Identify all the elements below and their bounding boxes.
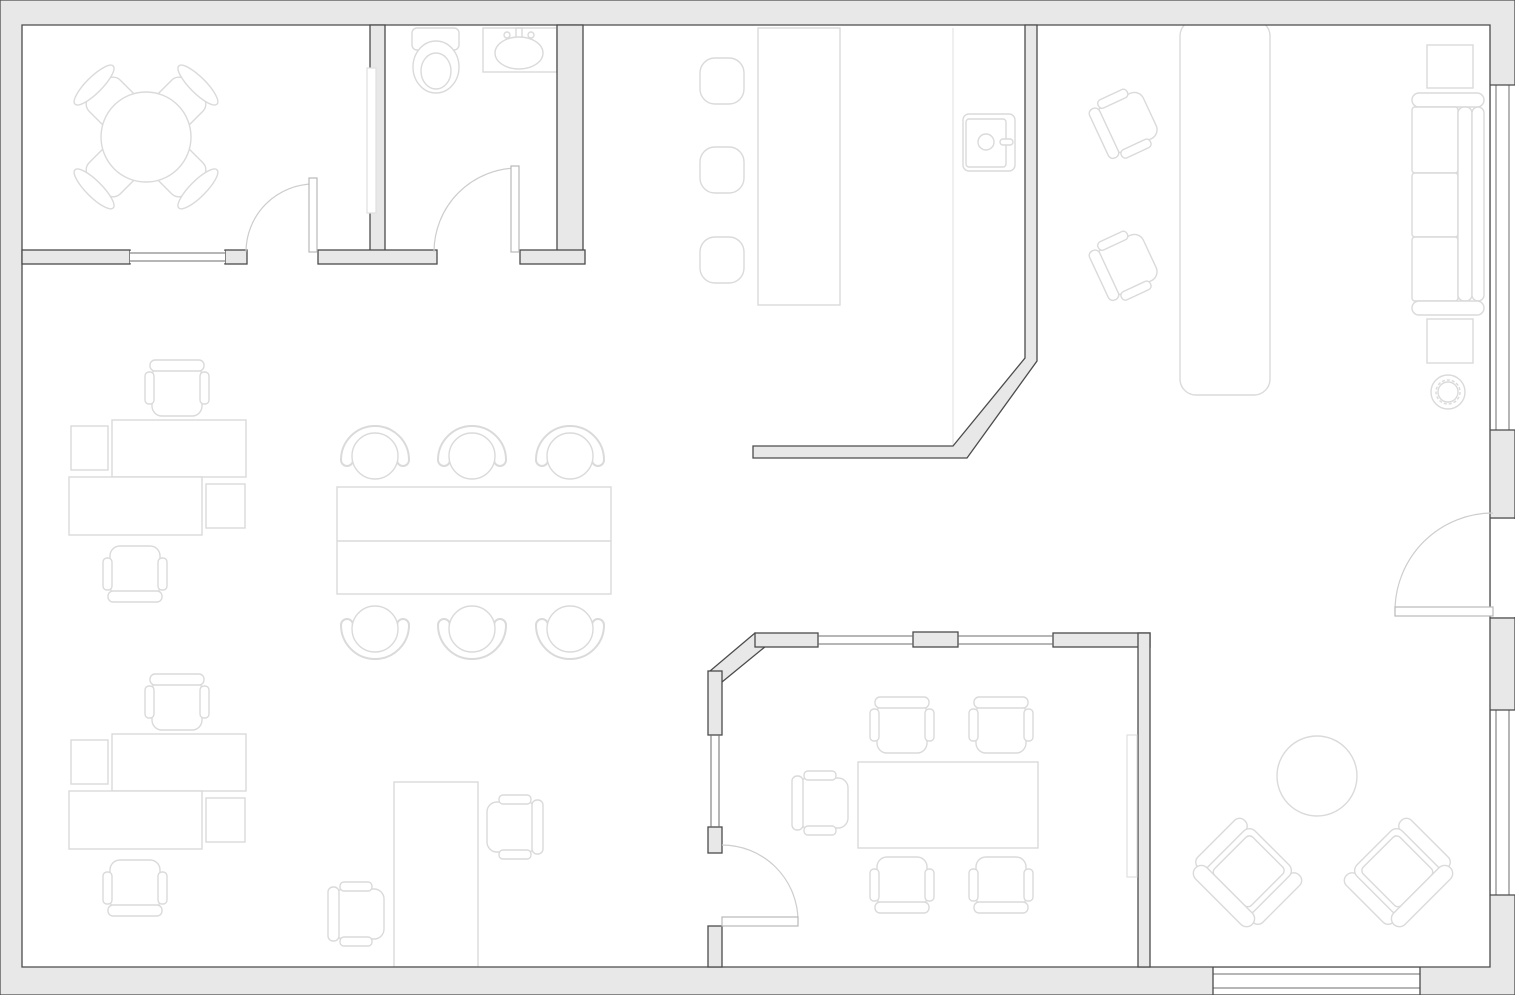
armchair <box>1186 815 1305 934</box>
desk-return <box>71 740 108 784</box>
wall-hall <box>225 250 247 264</box>
wall-meeting-top <box>755 633 818 647</box>
door-large-meeting-room <box>722 845 798 926</box>
task-chair <box>103 546 167 602</box>
wall-meeting-right <box>1138 633 1150 967</box>
meeting-chair <box>792 771 848 835</box>
round-table <box>101 92 191 182</box>
door-entry-right <box>1395 513 1493 616</box>
door-small-meeting-room <box>246 178 317 252</box>
standing-desk-area <box>328 782 543 967</box>
wall-meeting-top <box>1053 633 1150 647</box>
wall-meeting-left-stub <box>708 926 722 967</box>
sofa <box>1412 93 1484 315</box>
bar-stool <box>700 58 744 104</box>
wall-meeting-left <box>708 827 722 853</box>
toilet <box>412 28 459 93</box>
side-table <box>1427 45 1473 88</box>
wall-hall <box>22 250 130 264</box>
wall-hall <box>318 250 437 264</box>
task-chair <box>487 795 543 859</box>
conference-chair <box>347 432 403 479</box>
plant <box>1431 375 1465 409</box>
wall-bathroom-right <box>557 25 583 252</box>
sink-vanity <box>483 28 557 72</box>
large-meeting-room-furniture <box>792 697 1038 913</box>
conference-chair <box>444 606 500 653</box>
standing-desk <box>394 782 478 967</box>
wall-meeting-mullion <box>913 632 958 647</box>
bathroom-fixtures <box>412 28 557 93</box>
wall-board-small-room <box>367 68 376 213</box>
meeting-chair <box>870 857 934 913</box>
bar-stool <box>700 147 744 193</box>
kitchen-bar-furniture <box>700 28 1015 446</box>
armchair <box>1341 815 1460 934</box>
long-table <box>1180 20 1270 395</box>
meeting-table <box>858 762 1038 848</box>
corner-lounge-furniture <box>1186 736 1460 934</box>
conference-chair <box>347 606 403 653</box>
task-chair <box>1085 225 1163 307</box>
floor-plan <box>0 0 1515 995</box>
desk-return <box>71 426 108 470</box>
wall-board-meeting-room <box>1127 735 1137 877</box>
bar-counter <box>758 28 840 305</box>
wall-hall <box>520 250 585 264</box>
conference-area <box>337 432 611 653</box>
side-table <box>1427 319 1473 363</box>
desk <box>112 420 246 477</box>
desk <box>69 477 202 535</box>
floor-plan-canvas <box>0 0 1515 995</box>
desk-return <box>206 798 245 842</box>
meeting-chair <box>969 857 1033 913</box>
desk-cluster <box>69 360 246 602</box>
conference-chair <box>542 432 598 479</box>
desk-cluster <box>69 674 246 916</box>
reception-furniture <box>1085 20 1484 409</box>
task-chair <box>328 882 384 946</box>
door-bathroom <box>434 166 519 252</box>
meeting-chair <box>870 697 934 753</box>
meeting-chair <box>969 697 1033 753</box>
coffee-table <box>1277 736 1357 816</box>
furniture-layer <box>69 20 1484 967</box>
wall-meeting-left <box>708 671 722 735</box>
task-chair <box>145 674 209 730</box>
desk-return <box>206 484 245 528</box>
small-meeting-room-furniture <box>69 60 222 213</box>
task-chair <box>1085 83 1163 165</box>
task-chair <box>145 360 209 416</box>
task-chair <box>103 860 167 916</box>
appliance <box>963 114 1015 171</box>
conference-chair <box>542 606 598 653</box>
conference-chair <box>444 432 500 479</box>
desk <box>112 734 246 791</box>
desk <box>69 791 202 849</box>
bar-stool <box>700 237 744 283</box>
